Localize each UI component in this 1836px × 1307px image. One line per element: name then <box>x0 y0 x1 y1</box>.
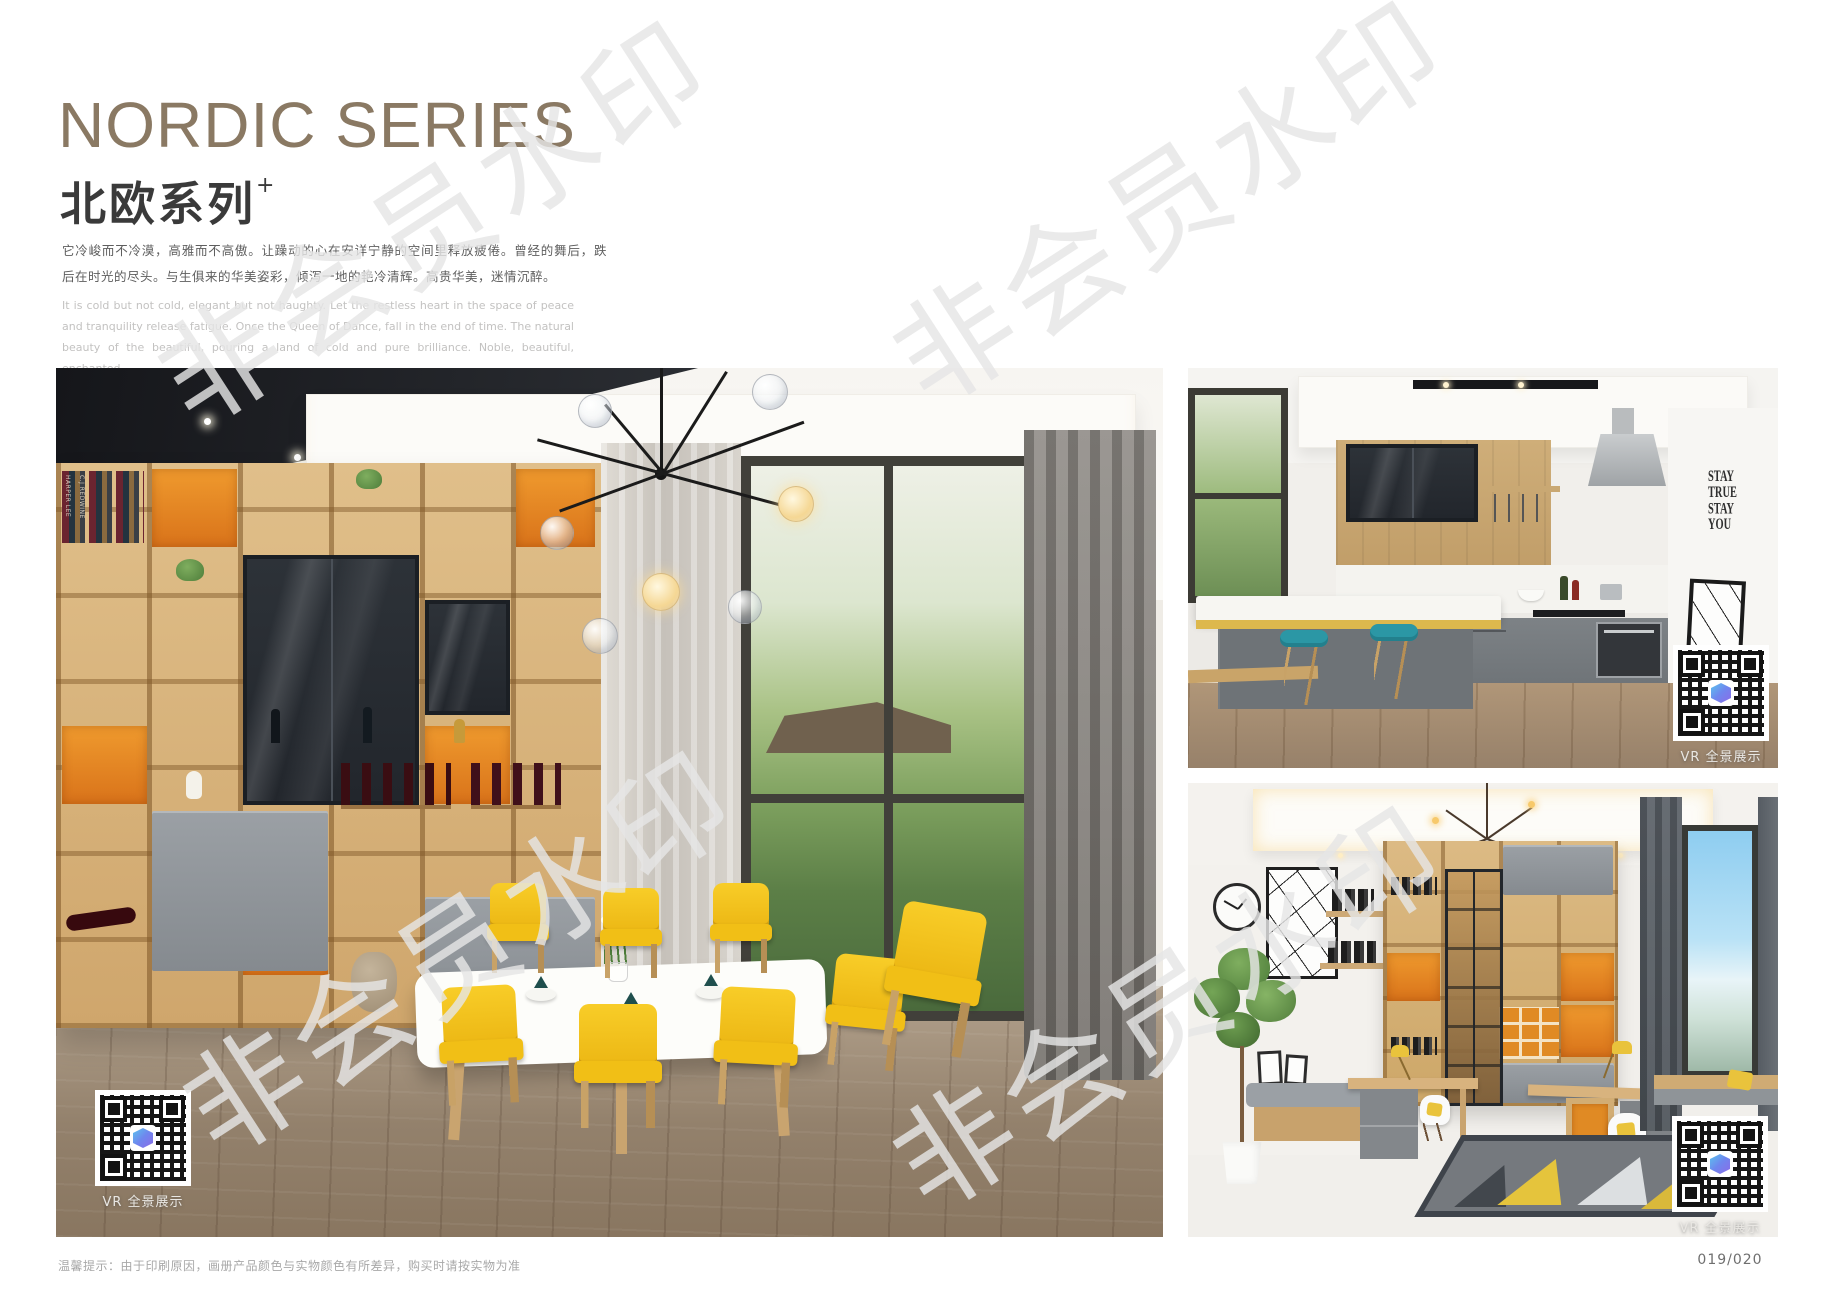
chair-legs <box>581 1081 655 1128</box>
qr-code <box>1672 1116 1768 1212</box>
glass-display-cabinet <box>1445 869 1503 1106</box>
oven-handle <box>1604 630 1654 633</box>
footer-disclaimer: 温馨提示：由于印刷原因，画册产品颜色与实物颜色有所差异，购买时请按实物为准 <box>58 1257 521 1274</box>
glass-bulb <box>582 618 618 654</box>
study-window <box>1682 825 1758 1077</box>
glass-bulb-lit <box>778 486 814 522</box>
dining-room-photo: HARPER LEE C.J REDWINE <box>56 368 1163 1237</box>
desk-top <box>1348 1078 1478 1089</box>
qr-finder-icon <box>1736 1122 1762 1148</box>
bar-stool-seat <box>1280 630 1328 647</box>
qr-cube-logo-icon <box>130 1125 156 1151</box>
track-spotlight <box>1443 382 1449 388</box>
counter-bottles <box>1560 576 1568 600</box>
qr-finder-icon <box>1737 651 1763 677</box>
subtitle-superscript: + <box>256 173 277 198</box>
leaning-frame <box>1284 1054 1308 1085</box>
wall-quote-line: STAY <box>1708 468 1756 484</box>
chair-legs <box>605 944 658 978</box>
subtitle-text: 北欧系列 <box>60 177 256 231</box>
qr-code <box>95 1090 191 1186</box>
chair-legs <box>715 939 768 973</box>
seat-pillow <box>1727 1069 1754 1091</box>
island-wood-edge <box>1196 620 1501 629</box>
window-mullion-vertical <box>884 466 893 1011</box>
plant-pot <box>1220 1142 1264 1184</box>
bar-stool-legs <box>1284 647 1324 705</box>
chandelier-arm <box>662 421 804 475</box>
window-seat-cushion <box>1654 1089 1778 1105</box>
vr-qr-block: VR 全景展示 <box>1671 645 1771 765</box>
cabinet-mullion <box>1412 448 1414 518</box>
track-spotlight <box>1518 382 1524 388</box>
qr-cube-logo-icon <box>1708 680 1734 706</box>
upper-glass-cabinet <box>1346 444 1478 522</box>
shelf-books <box>1328 941 1376 963</box>
built-in-oven <box>1596 622 1662 678</box>
white-chair <box>1420 1095 1450 1141</box>
wall-quote: STAY TRUE STAY YOU <box>1708 468 1756 532</box>
bar-stool-legs <box>1374 641 1414 699</box>
window-mullion-horizontal <box>1195 493 1281 499</box>
chandelier <box>526 368 806 728</box>
glass-bulb <box>540 516 574 550</box>
plant-trunk <box>1240 1046 1244 1144</box>
glass-bulb <box>752 374 788 410</box>
wall-quote-line: YOU <box>1708 516 1756 532</box>
wine-bottles <box>341 763 451 809</box>
cabinet-mullion <box>1473 872 1475 1103</box>
chair-back <box>719 986 796 1049</box>
gray-top-cabinet <box>1503 845 1613 895</box>
orange-cubby <box>1561 953 1614 1001</box>
chandelier-stem <box>660 368 663 473</box>
ceiling-track-light <box>1413 380 1598 389</box>
rug-triangle-yellow <box>1497 1159 1588 1205</box>
glass-bulb-lit <box>642 573 680 611</box>
plate <box>526 988 556 1001</box>
kitchen-window <box>1188 388 1288 603</box>
downlight <box>204 418 211 425</box>
chandelier-stem <box>1486 783 1488 838</box>
range-hood <box>1588 434 1666 486</box>
qr-finder-icon <box>1679 651 1705 677</box>
book-row: HARPER LEE C.J REDWINE <box>62 471 144 543</box>
page-number: 019/020 <box>1682 1252 1778 1268</box>
cooktop <box>1533 610 1625 617</box>
island-countertop <box>1196 596 1501 622</box>
gray-curtain <box>1024 430 1156 1080</box>
counter-bottles <box>1572 580 1579 600</box>
vr-panorama-label: VR 全景展示 <box>93 1191 193 1210</box>
hood-chimney <box>1612 408 1634 436</box>
cabinet-bottle <box>271 709 280 743</box>
vr-qr-block: VR 全景展示 <box>1670 1116 1770 1236</box>
ceramic-jar <box>351 952 397 1012</box>
catalog-page: NORDIC SERIES 北欧系列+ 它冷峻而不冷漠，高雅而不高傲。让躁动的心… <box>0 0 1836 1307</box>
study-room-photo: VR 全景展示 <box>1188 783 1778 1237</box>
open-shelf <box>1488 486 1560 492</box>
description-chinese: 它冷峻而不冷漠，高雅而不高傲。让躁动的心在安详宁静的空间里释放疲倦。曾经的舞后，… <box>62 238 607 291</box>
page-title: NORDIC SERIES <box>58 88 576 162</box>
clock-hand-minute <box>1224 900 1239 910</box>
window-ledge <box>1654 1075 1778 1089</box>
chair-back <box>713 883 768 928</box>
chandelier-arm <box>537 438 663 475</box>
potted-plant <box>176 559 204 581</box>
white-vase <box>186 771 202 799</box>
desk-lamp-head <box>1612 1041 1632 1054</box>
orange-cubby <box>152 469 237 547</box>
window-mullion-horizontal <box>751 794 1026 803</box>
vr-panorama-label: VR 全景展示 <box>1670 1217 1770 1236</box>
qr-cube-logo-icon <box>1707 1151 1733 1177</box>
wall-quote-line: TRUE <box>1708 484 1756 500</box>
bar-stool-seat <box>1370 624 1418 641</box>
cabinet-bottle <box>363 707 372 743</box>
wine-bottles <box>471 763 561 809</box>
desk-drawers <box>1360 1089 1418 1159</box>
orange-cubby <box>62 726 147 804</box>
vr-panorama-label: VR 全景展示 <box>1671 746 1771 765</box>
qr-finder-icon <box>159 1096 185 1122</box>
gold-figurine <box>454 719 465 743</box>
kitchen-photo: STAY TRUE STAY YOU VR 全景展示 <box>1188 368 1778 768</box>
wall-shelf <box>1326 911 1388 917</box>
wall-quote-line: STAY <box>1708 500 1756 516</box>
study-shelving <box>1383 841 1618 1106</box>
glass-display-cabinet <box>425 600 510 715</box>
clock-hand-hour <box>1237 898 1247 909</box>
qr-code <box>1673 645 1769 741</box>
chair-back <box>603 888 658 933</box>
book-spine-label: HARPER LEE <box>64 475 71 517</box>
bulb <box>1432 817 1439 824</box>
chair-back <box>579 1004 656 1066</box>
chair-back <box>441 984 518 1047</box>
hanging-utensils <box>1494 494 1550 522</box>
yellow-chair <box>601 888 661 978</box>
plant-foliage <box>1246 980 1296 1022</box>
chair-legs <box>718 1059 791 1107</box>
shelf-books <box>1332 889 1374 911</box>
chandelier-arm <box>1486 807 1532 840</box>
yellow-chair <box>711 883 771 973</box>
chair-pillow <box>1426 1102 1443 1117</box>
orange-cubby-grid <box>1499 1007 1559 1059</box>
chair-legs <box>1423 1123 1447 1141</box>
qr-finder-icon <box>1678 1122 1704 1148</box>
orange-cubby <box>1387 953 1440 1001</box>
wine-rack-bottle <box>65 906 137 932</box>
cabinet-mullion <box>331 559 333 801</box>
potted-plant <box>356 469 382 489</box>
chandelier-arm <box>559 472 663 512</box>
yellow-chair <box>438 984 524 1106</box>
gray-door-cabinet <box>152 811 328 971</box>
glass-bulb <box>728 590 762 624</box>
qr-finder-icon <box>101 1154 127 1180</box>
shelf-books <box>1391 877 1437 895</box>
qr-finder-icon <box>1679 709 1705 735</box>
yellow-chair <box>488 883 548 973</box>
downlight <box>1618 853 1623 858</box>
desk-lamp-head <box>1391 1045 1409 1057</box>
qr-finder-icon <box>101 1096 127 1122</box>
glass-bulb <box>578 394 612 428</box>
plant-foliage <box>1216 1012 1260 1048</box>
qr-finder-icon <box>1678 1180 1704 1206</box>
chair-legs <box>492 939 545 973</box>
page-subtitle-cn: 北欧系列+ <box>60 168 277 234</box>
book-spine-label: C.J REDWINE <box>78 475 85 519</box>
downlight <box>294 454 301 461</box>
chair-legs <box>447 1057 520 1105</box>
chandelier-arm <box>662 371 728 474</box>
wall-shelf <box>1320 963 1392 969</box>
vr-qr-block: VR 全景展示 <box>93 1090 193 1210</box>
leaning-frame <box>1257 1050 1283 1085</box>
yellow-chair <box>576 1004 660 1128</box>
orange-cubby <box>1561 1005 1614 1057</box>
stock-pot <box>1600 584 1622 600</box>
yellow-chair <box>713 986 799 1108</box>
wall-clock <box>1213 883 1261 931</box>
downlight <box>1338 853 1343 858</box>
bulb <box>1528 801 1535 808</box>
chair-back <box>490 883 545 928</box>
chandelier-arm <box>1445 810 1487 840</box>
